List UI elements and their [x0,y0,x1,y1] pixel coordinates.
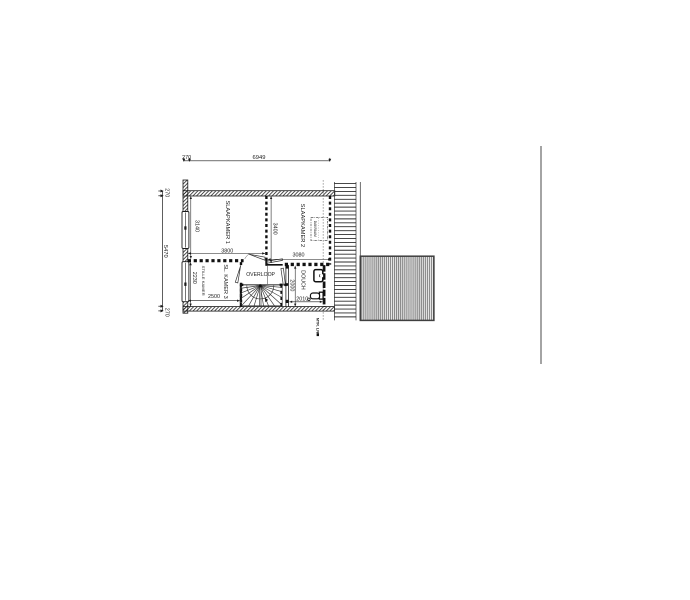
svg-text:2230: 2230 [191,272,197,284]
svg-text:270: 270 [164,188,170,197]
svg-text:6949: 6949 [253,155,266,161]
svg-text:SL. KAMER 3: SL. KAMER 3 [222,264,228,298]
svg-text:STILLE KAMER: STILLE KAMER [201,266,205,296]
svg-text:3140: 3140 [193,220,199,232]
svg-text:DAKRAAM: DAKRAAM [313,221,317,237]
svg-text:LN: LN [316,328,320,334]
svg-text:2000: 2000 [288,279,294,291]
svg-text:MTR.: MTR. [316,318,320,327]
svg-text:OVERLOOP: OVERLOOP [246,272,275,278]
svg-text:270: 270 [182,155,191,161]
svg-text:2500: 2500 [208,294,220,300]
svg-text:3800: 3800 [221,249,233,255]
svg-text:5470: 5470 [162,245,168,258]
svg-text:DOUCH: DOUCH [300,270,306,290]
svg-text:2010: 2010 [296,296,308,302]
svg-text:3400: 3400 [272,223,278,235]
svg-text:3080: 3080 [293,252,305,258]
svg-text:SLAAPKAMER 2: SLAAPKAMER 2 [299,204,305,248]
svg-text:SLAAPKAMER 1: SLAAPKAMER 1 [224,200,230,244]
svg-text:270: 270 [163,308,169,317]
